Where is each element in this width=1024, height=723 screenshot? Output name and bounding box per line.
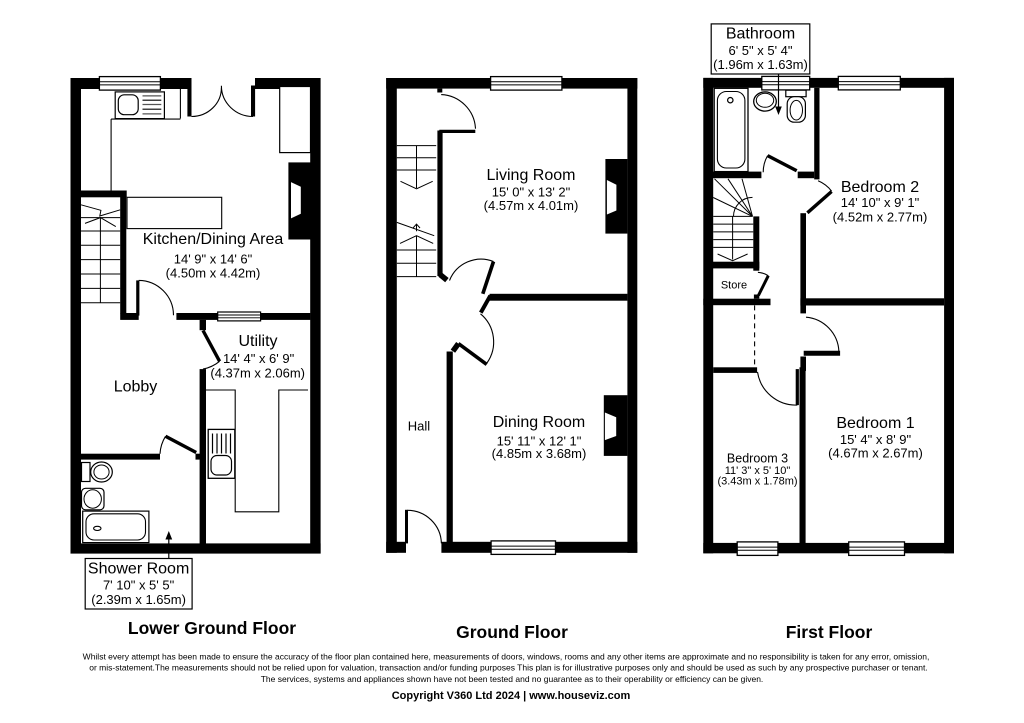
- svg-text:(1.96m x 1.63m): (1.96m x 1.63m): [713, 57, 808, 72]
- svg-text:Hall: Hall: [408, 419, 431, 434]
- svg-text:(4.67m x 2.67m): (4.67m x 2.67m): [828, 446, 923, 461]
- svg-text:Ground Floor: Ground Floor: [456, 622, 568, 642]
- svg-text:Lower Ground Floor: Lower Ground Floor: [128, 618, 296, 638]
- svg-text:Store: Store: [721, 280, 747, 292]
- svg-text:Utility: Utility: [238, 333, 277, 350]
- svg-text:(4.37m x 2.06m): (4.37m x 2.06m): [210, 366, 305, 381]
- svg-text:7' 10" x 5' 5": 7' 10" x 5' 5": [103, 578, 175, 593]
- svg-text:(4.85m x 3.68m): (4.85m x 3.68m): [492, 446, 587, 461]
- svg-text:Living Room: Living Room: [487, 167, 576, 184]
- svg-text:Copyright V360 Ltd 2024 | www.: Copyright V360 Ltd 2024 | www.houseviz.c…: [392, 690, 631, 702]
- svg-text:Bedroom 2: Bedroom 2: [841, 179, 919, 196]
- svg-text:(4.52m x 2.77m): (4.52m x 2.77m): [833, 210, 928, 225]
- svg-text:14' 4" x 6' 9": 14' 4" x 6' 9": [223, 351, 295, 366]
- svg-text:Whilst every attempt has been: Whilst every attempt has been made to en…: [83, 652, 930, 662]
- svg-text:First Floor: First Floor: [786, 622, 873, 642]
- svg-text:Bathroom: Bathroom: [726, 26, 795, 43]
- svg-text:14' 9" x 14' 6": 14' 9" x 14' 6": [174, 252, 253, 267]
- svg-text:or mis-statement.The measureme: or mis-statement.The measurements should…: [89, 663, 928, 673]
- svg-text:The services, systems and appl: The services, systems and appliances sho…: [261, 674, 764, 684]
- svg-text:(2.39m x 1.65m): (2.39m x 1.65m): [91, 592, 186, 607]
- svg-text:6' 5" x 5' 4": 6' 5" x 5' 4": [728, 43, 792, 58]
- svg-text:14' 10" x 9' 1": 14' 10" x 9' 1": [841, 195, 920, 210]
- svg-text:Dining Room: Dining Room: [493, 414, 585, 431]
- svg-text:(4.50m x 4.42m): (4.50m x 4.42m): [166, 266, 261, 281]
- svg-text:Lobby: Lobby: [114, 379, 158, 396]
- svg-text:(4.57m x 4.01m): (4.57m x 4.01m): [484, 198, 579, 213]
- svg-text:Kitchen/Dining Area: Kitchen/Dining Area: [143, 231, 284, 248]
- svg-text:Bedroom 1: Bedroom 1: [836, 415, 914, 432]
- svg-text:(3.43m x 1.78m): (3.43m x 1.78m): [717, 476, 797, 488]
- svg-text:Shower Room: Shower Room: [88, 561, 189, 578]
- svg-text:Bedroom 3: Bedroom 3: [727, 452, 788, 466]
